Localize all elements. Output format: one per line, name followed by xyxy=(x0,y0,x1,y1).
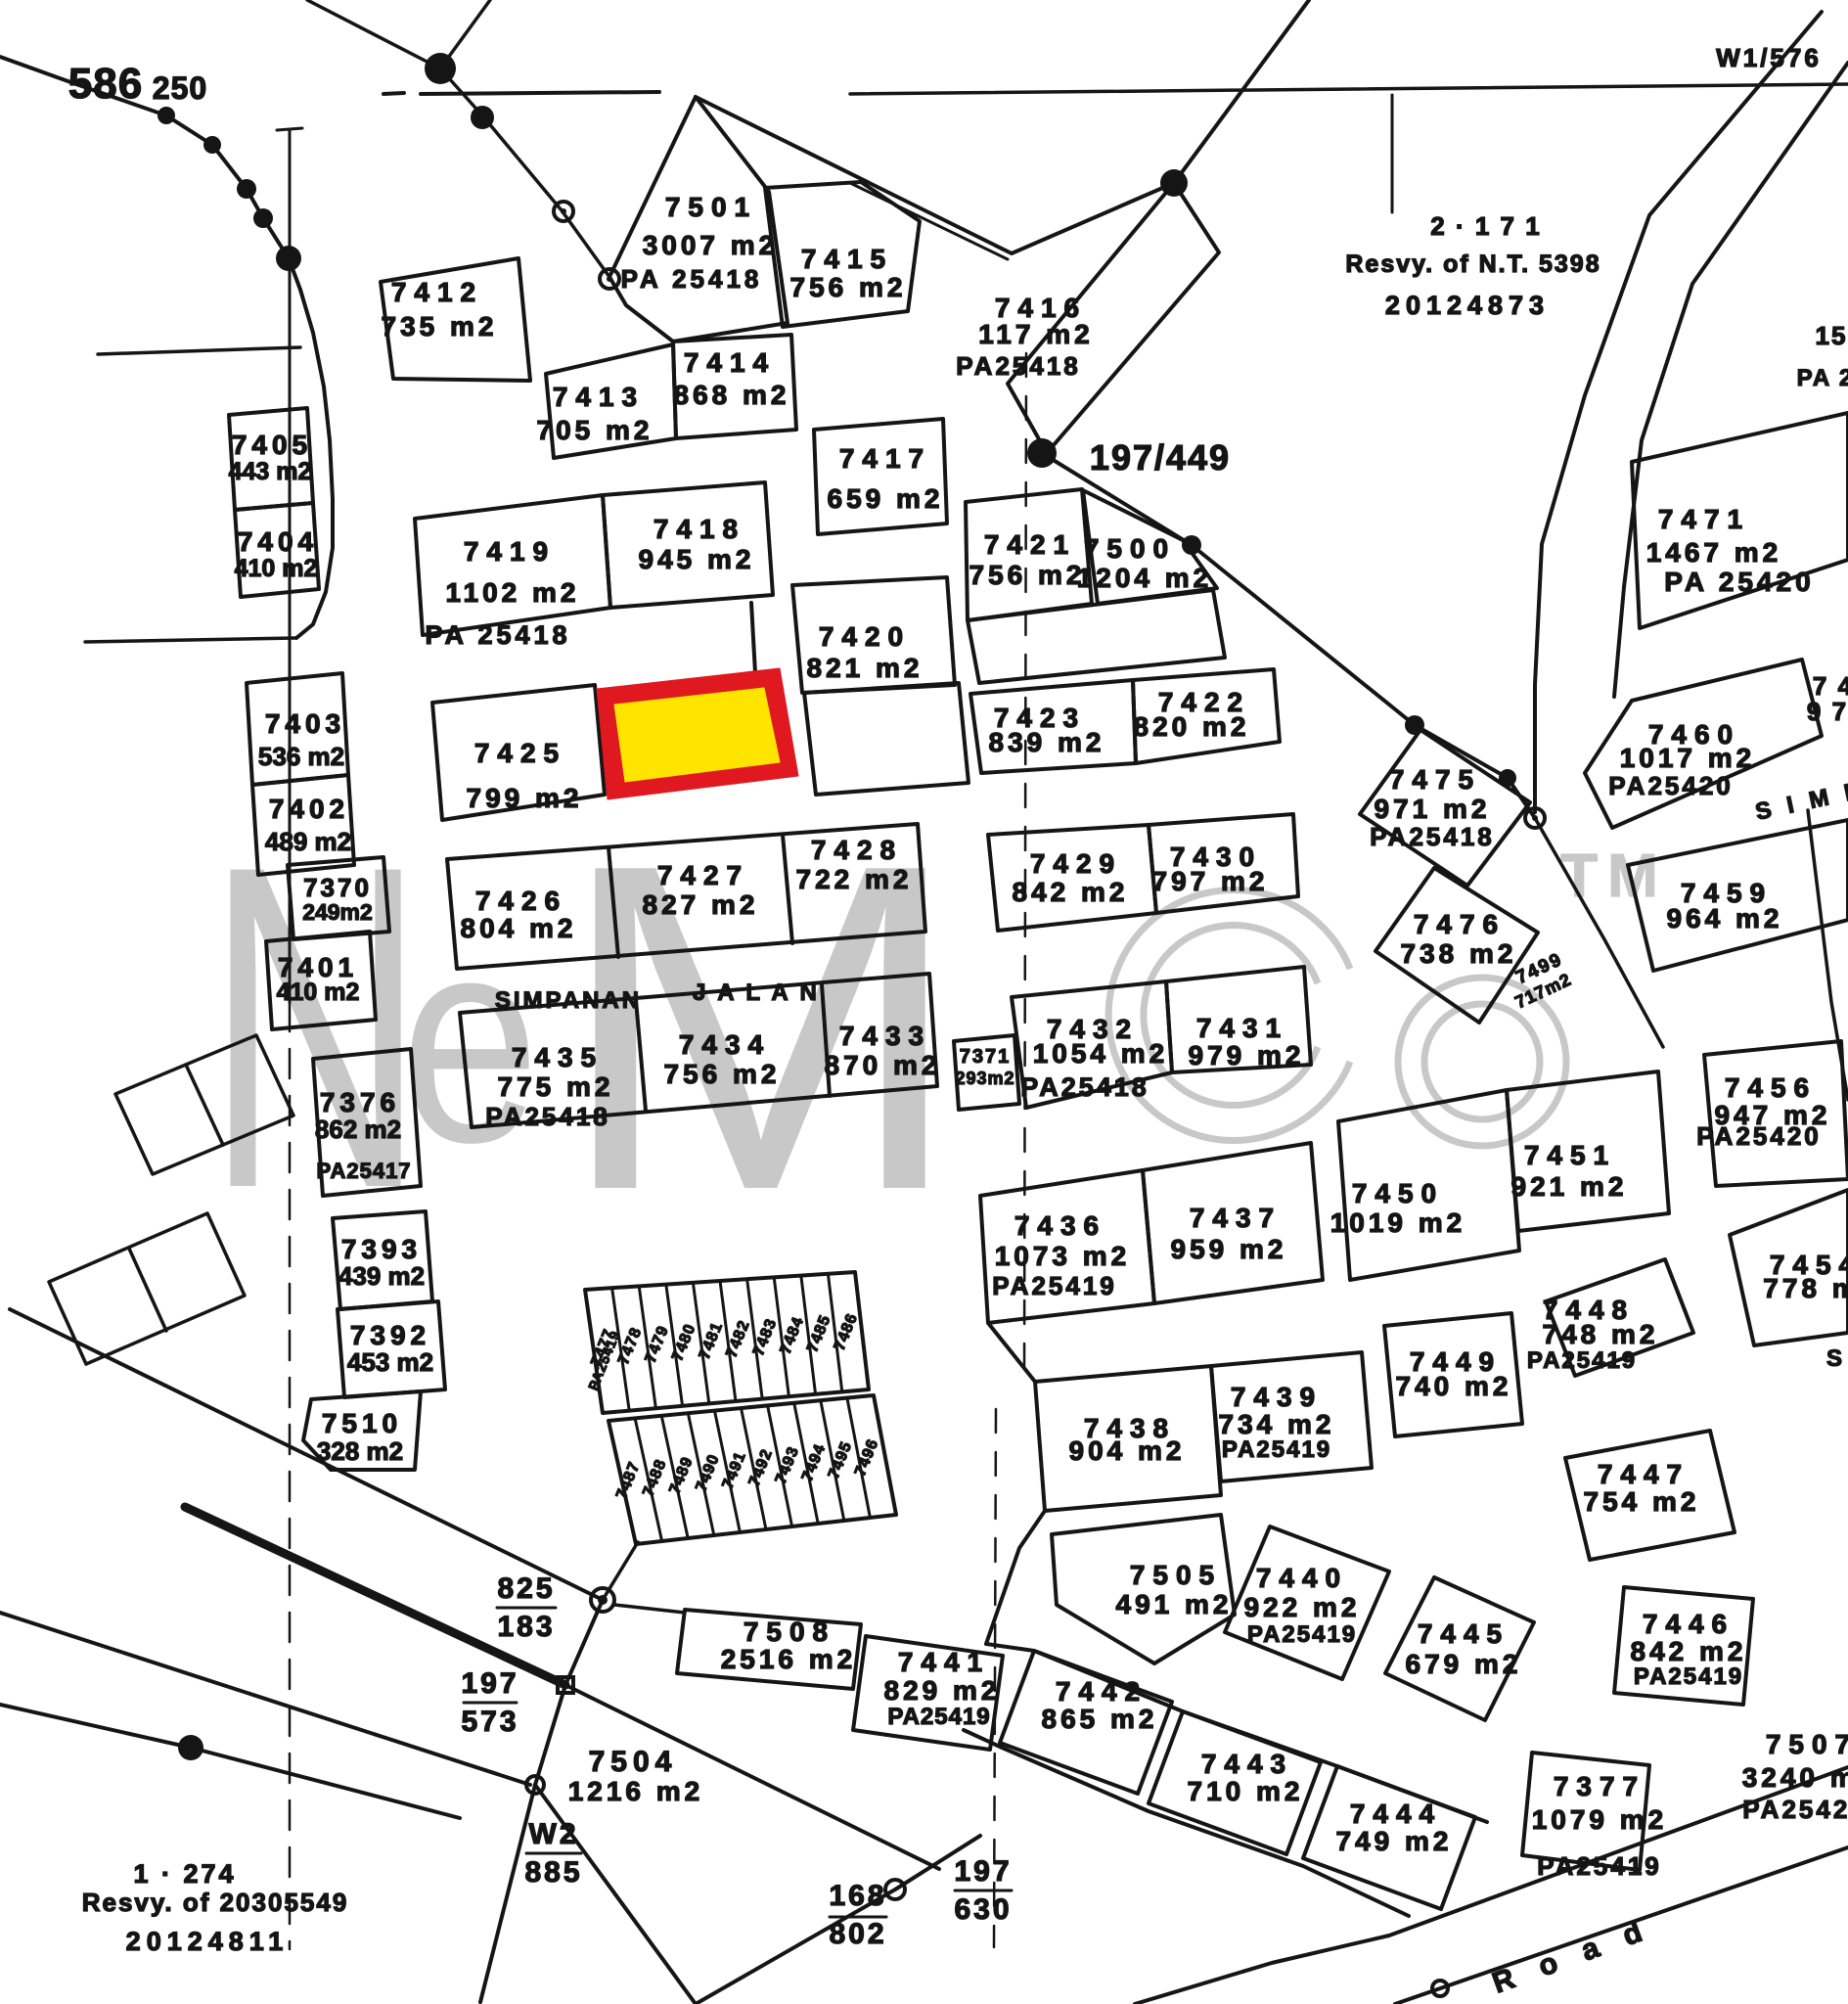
svg-text:15: 15 xyxy=(1816,321,1848,350)
svg-text:754 m2: 754 m2 xyxy=(1584,1486,1700,1517)
svg-text:740 m2: 740 m2 xyxy=(1396,1371,1512,1401)
svg-text:1216 m2: 1216 m2 xyxy=(568,1776,704,1806)
svg-text:825: 825 xyxy=(497,1572,555,1605)
svg-text:PA25418: PA25418 xyxy=(1020,1072,1149,1102)
svg-text:7403: 7403 xyxy=(265,708,345,739)
svg-text:756 m2: 756 m2 xyxy=(969,560,1086,590)
svg-text:734 m2: 734 m2 xyxy=(1219,1409,1335,1439)
svg-text:7377: 7377 xyxy=(1554,1771,1645,1801)
svg-text:7440: 7440 xyxy=(1256,1563,1348,1593)
svg-text:7439: 7439 xyxy=(1231,1382,1323,1412)
svg-text:PA25418: PA25418 xyxy=(956,351,1081,381)
svg-text:PA25417: PA25417 xyxy=(316,1159,411,1183)
svg-text:7435: 7435 xyxy=(512,1042,604,1072)
svg-text:443 m2: 443 m2 xyxy=(229,458,312,485)
svg-text:7370: 7370 xyxy=(303,873,372,902)
svg-text:7413: 7413 xyxy=(553,382,645,412)
svg-text:7402: 7402 xyxy=(269,794,349,824)
svg-text:7371: 7371 xyxy=(960,1046,1012,1068)
svg-text:862 m2: 862 m2 xyxy=(315,1115,401,1144)
svg-text:7443: 7443 xyxy=(1201,1749,1293,1779)
svg-text:7504: 7504 xyxy=(589,1746,678,1778)
svg-text:7510: 7510 xyxy=(322,1408,402,1438)
svg-text:775 m2: 775 m2 xyxy=(498,1071,614,1102)
svg-text:839 m2: 839 m2 xyxy=(989,727,1105,757)
svg-text:TM: TM xyxy=(1560,843,1668,910)
svg-text:820 m2: 820 m2 xyxy=(1134,711,1250,742)
svg-text:945 m2: 945 m2 xyxy=(639,544,755,574)
svg-text:197: 197 xyxy=(461,1667,518,1700)
svg-text:842 m2: 842 m2 xyxy=(1631,1636,1747,1666)
svg-text:410 m2: 410 m2 xyxy=(235,555,318,582)
svg-text:922 m2: 922 m2 xyxy=(1244,1592,1361,1622)
svg-text:1073 m2: 1073 m2 xyxy=(995,1241,1131,1271)
svg-text:7451: 7451 xyxy=(1524,1140,1616,1170)
svg-text:20124873: 20124873 xyxy=(1385,291,1550,320)
svg-text:1467 m2: 1467 m2 xyxy=(1646,537,1782,568)
svg-text:7376: 7376 xyxy=(320,1087,400,1117)
svg-text:117 m2: 117 m2 xyxy=(978,319,1093,349)
svg-text:802: 802 xyxy=(829,1918,886,1950)
svg-text:2516 m2: 2516 m2 xyxy=(721,1644,857,1674)
svg-text:738 m2: 738 m2 xyxy=(1401,938,1517,969)
svg-text:7508: 7508 xyxy=(744,1617,835,1647)
svg-text:J A L A N: J A L A N xyxy=(693,979,820,1006)
svg-text:W2: W2 xyxy=(529,1818,579,1850)
svg-text:7431: 7431 xyxy=(1196,1013,1288,1043)
svg-text:PA25420: PA25420 xyxy=(1696,1121,1822,1151)
svg-text:7434: 7434 xyxy=(679,1029,771,1060)
svg-text:PA25419: PA25419 xyxy=(1247,1621,1357,1648)
svg-text:586: 586 xyxy=(68,60,143,108)
svg-text:797 m2: 797 m2 xyxy=(1152,866,1269,896)
svg-text:7433: 7433 xyxy=(839,1021,931,1051)
svg-text:197/449: 197/449 xyxy=(1090,437,1231,478)
svg-text:7505: 7505 xyxy=(1130,1560,1222,1590)
svg-text:7437: 7437 xyxy=(1190,1203,1282,1233)
svg-text:7428: 7428 xyxy=(811,835,903,865)
svg-text:1102 m2: 1102 m2 xyxy=(446,577,580,608)
svg-text:865 m2: 865 m2 xyxy=(1042,1704,1158,1734)
svg-text:PA25419: PA25419 xyxy=(1537,1851,1662,1881)
svg-text:959 m2: 959 m2 xyxy=(1171,1234,1287,1264)
svg-text:7456: 7456 xyxy=(1725,1072,1817,1103)
svg-text:Resvy. of N.T. 5398: Resvy. of N.T. 5398 xyxy=(1345,250,1600,278)
svg-text:S: S xyxy=(1826,1345,1844,1372)
svg-text:2 · 1 7 1: 2 · 1 7 1 xyxy=(1430,211,1541,241)
svg-text:SIMPANAN: SIMPANAN xyxy=(495,987,642,1014)
svg-text:293m2: 293m2 xyxy=(955,1069,1014,1088)
svg-text:491 m2: 491 m2 xyxy=(1116,1589,1233,1619)
svg-text:3240 m2: 3240 m2 xyxy=(1742,1762,1848,1793)
svg-text:20124811: 20124811 xyxy=(126,1927,290,1956)
svg-text:1079 m2: 1079 m2 xyxy=(1532,1804,1668,1835)
svg-text:1054 m2: 1054 m2 xyxy=(1033,1038,1169,1069)
svg-text:829 m2: 829 m2 xyxy=(884,1675,1001,1706)
svg-text:748 m2: 748 m2 xyxy=(1543,1319,1659,1349)
svg-text:679 m2: 679 m2 xyxy=(1406,1649,1522,1679)
svg-text:7476: 7476 xyxy=(1414,909,1506,939)
svg-text:7420: 7420 xyxy=(819,621,911,652)
svg-text:756 m2: 756 m2 xyxy=(790,272,907,302)
svg-text:1019 m2: 1019 m2 xyxy=(1330,1207,1466,1238)
svg-text:489 m2: 489 m2 xyxy=(265,827,351,856)
svg-text:573: 573 xyxy=(461,1706,518,1738)
svg-text:7475: 7475 xyxy=(1389,764,1481,795)
svg-text:804 m2: 804 m2 xyxy=(461,913,577,943)
svg-text:7426: 7426 xyxy=(475,886,567,916)
svg-text:904 m2: 904 m2 xyxy=(1069,1435,1186,1466)
svg-text:868 m2: 868 m2 xyxy=(674,380,790,410)
svg-text:964 m2: 964 m2 xyxy=(1667,903,1783,934)
svg-text:7441: 7441 xyxy=(898,1647,990,1677)
svg-text:722 m2: 722 m2 xyxy=(796,864,913,894)
svg-text:921 m2: 921 m2 xyxy=(1511,1171,1628,1202)
svg-text:197: 197 xyxy=(954,1855,1012,1888)
svg-text:249m2: 249m2 xyxy=(302,899,373,925)
svg-text:842 m2: 842 m2 xyxy=(1013,877,1129,907)
svg-text:PA25420: PA25420 xyxy=(1608,771,1734,800)
svg-text:7392: 7392 xyxy=(350,1320,430,1350)
svg-text:1017 m2: 1017 m2 xyxy=(1620,743,1756,773)
svg-text:183: 183 xyxy=(497,1611,555,1643)
svg-text:W1/576: W1/576 xyxy=(1716,43,1822,72)
svg-text:7471: 7471 xyxy=(1658,504,1750,534)
svg-text:1 · 274: 1 · 274 xyxy=(133,1859,236,1889)
svg-text:7501: 7501 xyxy=(665,192,757,222)
svg-text:7429: 7429 xyxy=(1030,848,1122,879)
svg-text:PA 25418: PA 25418 xyxy=(621,264,763,294)
svg-text:3007 m2: 3007 m2 xyxy=(643,230,779,260)
svg-text:PA25419: PA25419 xyxy=(1222,1436,1331,1463)
svg-text:1204 m2: 1204 m2 xyxy=(1077,563,1213,593)
svg-text:7417: 7417 xyxy=(839,443,931,474)
svg-text:PA 2: PA 2 xyxy=(1797,365,1848,391)
svg-text:7500: 7500 xyxy=(1084,533,1176,564)
svg-text:7393: 7393 xyxy=(341,1234,422,1264)
svg-text:821 m2: 821 m2 xyxy=(807,653,924,683)
svg-text:7442: 7442 xyxy=(1056,1676,1148,1707)
svg-text:778 m: 778 m xyxy=(1763,1273,1848,1303)
svg-text:735 m2: 735 m2 xyxy=(382,311,498,342)
svg-text:7412: 7412 xyxy=(391,277,483,307)
svg-text:7446: 7446 xyxy=(1643,1609,1735,1639)
svg-text:7447: 7447 xyxy=(1598,1459,1690,1489)
svg-text:7444: 7444 xyxy=(1350,1799,1442,1829)
svg-text:710 m2: 710 m2 xyxy=(1188,1776,1304,1806)
svg-text:7414: 7414 xyxy=(684,347,776,378)
svg-text:PA 25418: PA 25418 xyxy=(425,620,570,650)
svg-text:PA25419: PA25419 xyxy=(887,1704,990,1730)
svg-text:168: 168 xyxy=(829,1880,886,1912)
svg-text:979 m2: 979 m2 xyxy=(1189,1040,1305,1070)
svg-text:7507: 7507 xyxy=(1766,1729,1848,1759)
svg-text:7421: 7421 xyxy=(984,529,1076,560)
svg-text:Resvy. of 20305549: Resvy. of 20305549 xyxy=(82,1888,349,1917)
svg-text:439 m2: 439 m2 xyxy=(338,1261,425,1291)
svg-text:7419: 7419 xyxy=(464,536,556,567)
svg-text:870 m2: 870 m2 xyxy=(825,1050,941,1080)
svg-text:536 m2: 536 m2 xyxy=(258,742,344,771)
svg-text:328 m2: 328 m2 xyxy=(317,1436,403,1466)
svg-text:410 m2: 410 m2 xyxy=(277,979,360,1006)
svg-text:7405: 7405 xyxy=(232,430,312,460)
svg-text:799 m2: 799 m2 xyxy=(467,783,583,813)
svg-text:7418: 7418 xyxy=(654,514,745,544)
svg-text:630: 630 xyxy=(954,1893,1012,1926)
svg-text:7427: 7427 xyxy=(657,860,749,890)
svg-text:PA25419: PA25419 xyxy=(1527,1347,1637,1374)
svg-text:659 m2: 659 m2 xyxy=(828,483,944,514)
svg-text:885: 885 xyxy=(524,1856,582,1889)
svg-text:453 m2: 453 m2 xyxy=(347,1347,433,1377)
svg-text:827 m2: 827 m2 xyxy=(643,889,759,920)
svg-text:9 7: 9 7 xyxy=(1807,697,1848,726)
svg-text:PA25420: PA25420 xyxy=(1742,1795,1848,1824)
svg-text:7425: 7425 xyxy=(474,738,566,768)
svg-text:756 m2: 756 m2 xyxy=(664,1059,781,1089)
svg-text:7450: 7450 xyxy=(1352,1178,1444,1208)
svg-text:PA25418: PA25418 xyxy=(485,1102,610,1131)
svg-text:749 m2: 749 m2 xyxy=(1336,1826,1453,1856)
svg-text:250: 250 xyxy=(153,70,207,106)
svg-text:PA25419: PA25419 xyxy=(1634,1663,1743,1690)
svg-text:7436: 7436 xyxy=(1014,1210,1106,1241)
svg-text:PA25418: PA25418 xyxy=(1370,822,1495,851)
svg-text:7415: 7415 xyxy=(801,244,893,274)
svg-text:PA25419: PA25419 xyxy=(992,1271,1117,1300)
svg-text:971 m2: 971 m2 xyxy=(1375,794,1491,824)
svg-text:PA 25420: PA 25420 xyxy=(1664,567,1814,597)
svg-text:7445: 7445 xyxy=(1418,1618,1510,1649)
svg-text:705 m2: 705 m2 xyxy=(537,415,654,445)
svg-text:7404: 7404 xyxy=(238,526,318,557)
